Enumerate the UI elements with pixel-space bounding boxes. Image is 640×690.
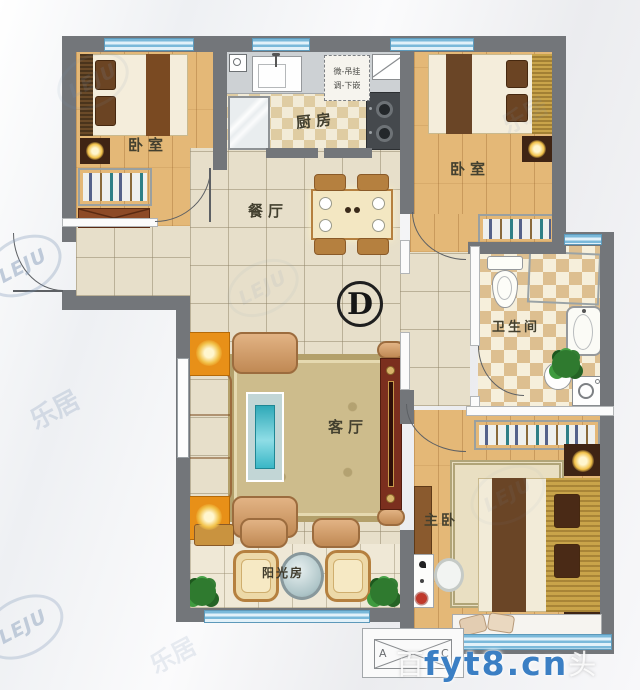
site-watermark-suffix: 头	[568, 643, 596, 683]
site-watermark-prefix: 百	[396, 643, 424, 683]
wall-dining-stub	[400, 332, 410, 390]
wall-bathroom-west-upper	[470, 246, 480, 346]
floor-plan-image: 卧室 微-吊挂 调-下嵌 厨房 卧室 餐厅	[0, 0, 640, 690]
room-label-master: 主卧	[424, 510, 458, 530]
kitchen-fridge	[228, 96, 270, 150]
red-flower	[416, 593, 427, 604]
window-sunroom	[204, 610, 370, 623]
side-lamp-bottom	[196, 504, 222, 530]
wall-right-lower	[600, 232, 614, 654]
stove-burner-1	[376, 101, 393, 118]
entry-floor	[76, 226, 190, 296]
tv-cabinet	[380, 358, 402, 510]
wall-kitchen-south-1	[266, 148, 318, 158]
bowl-1	[345, 207, 351, 213]
tv-knob-top	[386, 366, 395, 375]
bathtub-basin	[573, 314, 593, 350]
dining-chair-1	[314, 174, 346, 191]
master-pillow-2	[554, 544, 580, 578]
kitchen-note-box: 微-吊挂 调-下嵌	[324, 55, 370, 101]
desk-lamp-icon	[419, 561, 426, 568]
bedroom1-bookshelf	[78, 168, 152, 206]
sofa-main	[184, 372, 232, 502]
stove-knob-1	[369, 107, 372, 110]
coffee-table-glass	[255, 405, 275, 469]
bedroom1-door-leaf	[209, 168, 211, 222]
leju-logo-text: LEJU	[65, 59, 121, 103]
dining-chair-3	[314, 238, 346, 255]
site-watermark: 百 fyt8.cn 头	[396, 640, 640, 686]
bowl-2	[354, 207, 360, 213]
toilet-seat	[497, 276, 512, 300]
site-watermark-url: fyt8.cn	[424, 644, 568, 683]
bedroom1-bed-runner	[146, 54, 170, 136]
sofa-armchair-top	[232, 332, 298, 374]
armchair-south-2	[312, 518, 360, 548]
shower-enclosure	[527, 250, 601, 305]
bathroom-plant	[552, 350, 580, 378]
room-label-kitchen: 厨房	[295, 108, 337, 133]
ac-letter-a: A	[379, 647, 387, 660]
plate-2	[319, 219, 332, 232]
wall-kitchen-south-2	[324, 148, 372, 158]
tv-knob-bottom	[386, 494, 395, 503]
leju-cn-watermark-3: 乐居	[143, 627, 202, 680]
bedroom2-pillow-1	[506, 60, 528, 88]
kitchen-note-line2: 调-下嵌	[334, 80, 361, 91]
leju-cn-watermark-1: 乐居	[22, 380, 85, 437]
armchair-south-1	[240, 518, 288, 548]
kitchen-stove	[366, 92, 402, 150]
leju-logo-text: LEJU	[0, 605, 51, 649]
bedroom2-lamp	[528, 140, 546, 158]
sink-faucet-head	[272, 53, 280, 56]
bedroom1-lamp	[86, 142, 104, 160]
plate-3	[372, 197, 385, 210]
sink-basin	[258, 64, 286, 88]
stove-knob-2	[369, 131, 372, 134]
side-lamp-top	[196, 340, 222, 366]
leju-logo-text: LEJU	[480, 473, 536, 517]
tv-cabinet-cap-bottom	[377, 508, 405, 526]
gas-meter-dial	[233, 58, 241, 66]
room-label-bedroom1: 卧室	[128, 134, 168, 155]
stove-burner-2	[376, 125, 393, 142]
dining-table	[311, 189, 393, 240]
window-top-kitchen	[252, 38, 310, 51]
wall-bedroom1-east	[213, 36, 227, 170]
room-label-bathroom: 卫生间	[492, 316, 540, 335]
wall-bedroom2-south	[468, 242, 566, 254]
master-pillow-1	[554, 494, 580, 528]
leju-logo-text: LEJU	[0, 244, 51, 288]
wall-bedroom2-door-post	[400, 240, 410, 274]
window-top-bedroom1	[104, 38, 194, 51]
dining-chair-2	[357, 174, 389, 191]
bay-pillow-2	[487, 612, 515, 634]
bedroom2-bed-runner	[446, 54, 472, 134]
master-lamp-top	[572, 450, 594, 472]
room-label-dining: 餐厅	[248, 200, 288, 221]
wall-left-lower	[176, 296, 190, 622]
leju-logo-watermark-2: LEJU	[0, 581, 75, 673]
bathtub	[566, 306, 602, 356]
wall-bathroom-south	[466, 406, 614, 416]
wall-right-upper	[552, 36, 566, 246]
bedroom2-bookshelf	[478, 214, 556, 244]
wall-bedroom2-west	[400, 36, 414, 214]
toilet-tank	[487, 256, 523, 270]
wall-entry-step	[62, 296, 188, 310]
wall-bedroom1-south	[62, 218, 158, 227]
sunroom-plant-right	[370, 578, 398, 606]
small-dot	[420, 579, 424, 583]
unit-type-letter: D	[347, 287, 373, 322]
kitchen-gas-meter	[229, 54, 247, 72]
kitchen-sink	[252, 56, 302, 92]
washing-machine	[572, 376, 603, 406]
kitchen-note-line1: 微-吊挂	[334, 66, 361, 77]
dining-chair-4	[357, 238, 389, 255]
room-label-sunroom: 阳光房	[262, 564, 304, 581]
leju-logo-text: LEJU	[235, 266, 291, 310]
window-top-bedroom2	[390, 38, 474, 51]
tv-screen	[388, 381, 394, 487]
plate-4	[372, 219, 385, 232]
sunroom-chair-right-cushion	[333, 559, 363, 593]
bathtub-faucet	[582, 309, 586, 313]
coffee-table	[246, 392, 284, 482]
window-bathroom	[564, 234, 602, 245]
sunroom-chair-right	[325, 550, 371, 602]
corridor-floor	[400, 252, 470, 406]
room-label-bedroom2: 卧室	[450, 158, 490, 179]
plate-1	[319, 197, 332, 210]
room-label-living: 客厅	[328, 416, 368, 437]
sink-faucet	[275, 55, 277, 67]
master-desk-chair	[434, 558, 464, 592]
washer-drum	[578, 383, 594, 399]
window-living-left	[177, 358, 189, 458]
unit-type-badge: D	[337, 281, 383, 327]
sunroom-plant-left	[188, 578, 216, 606]
